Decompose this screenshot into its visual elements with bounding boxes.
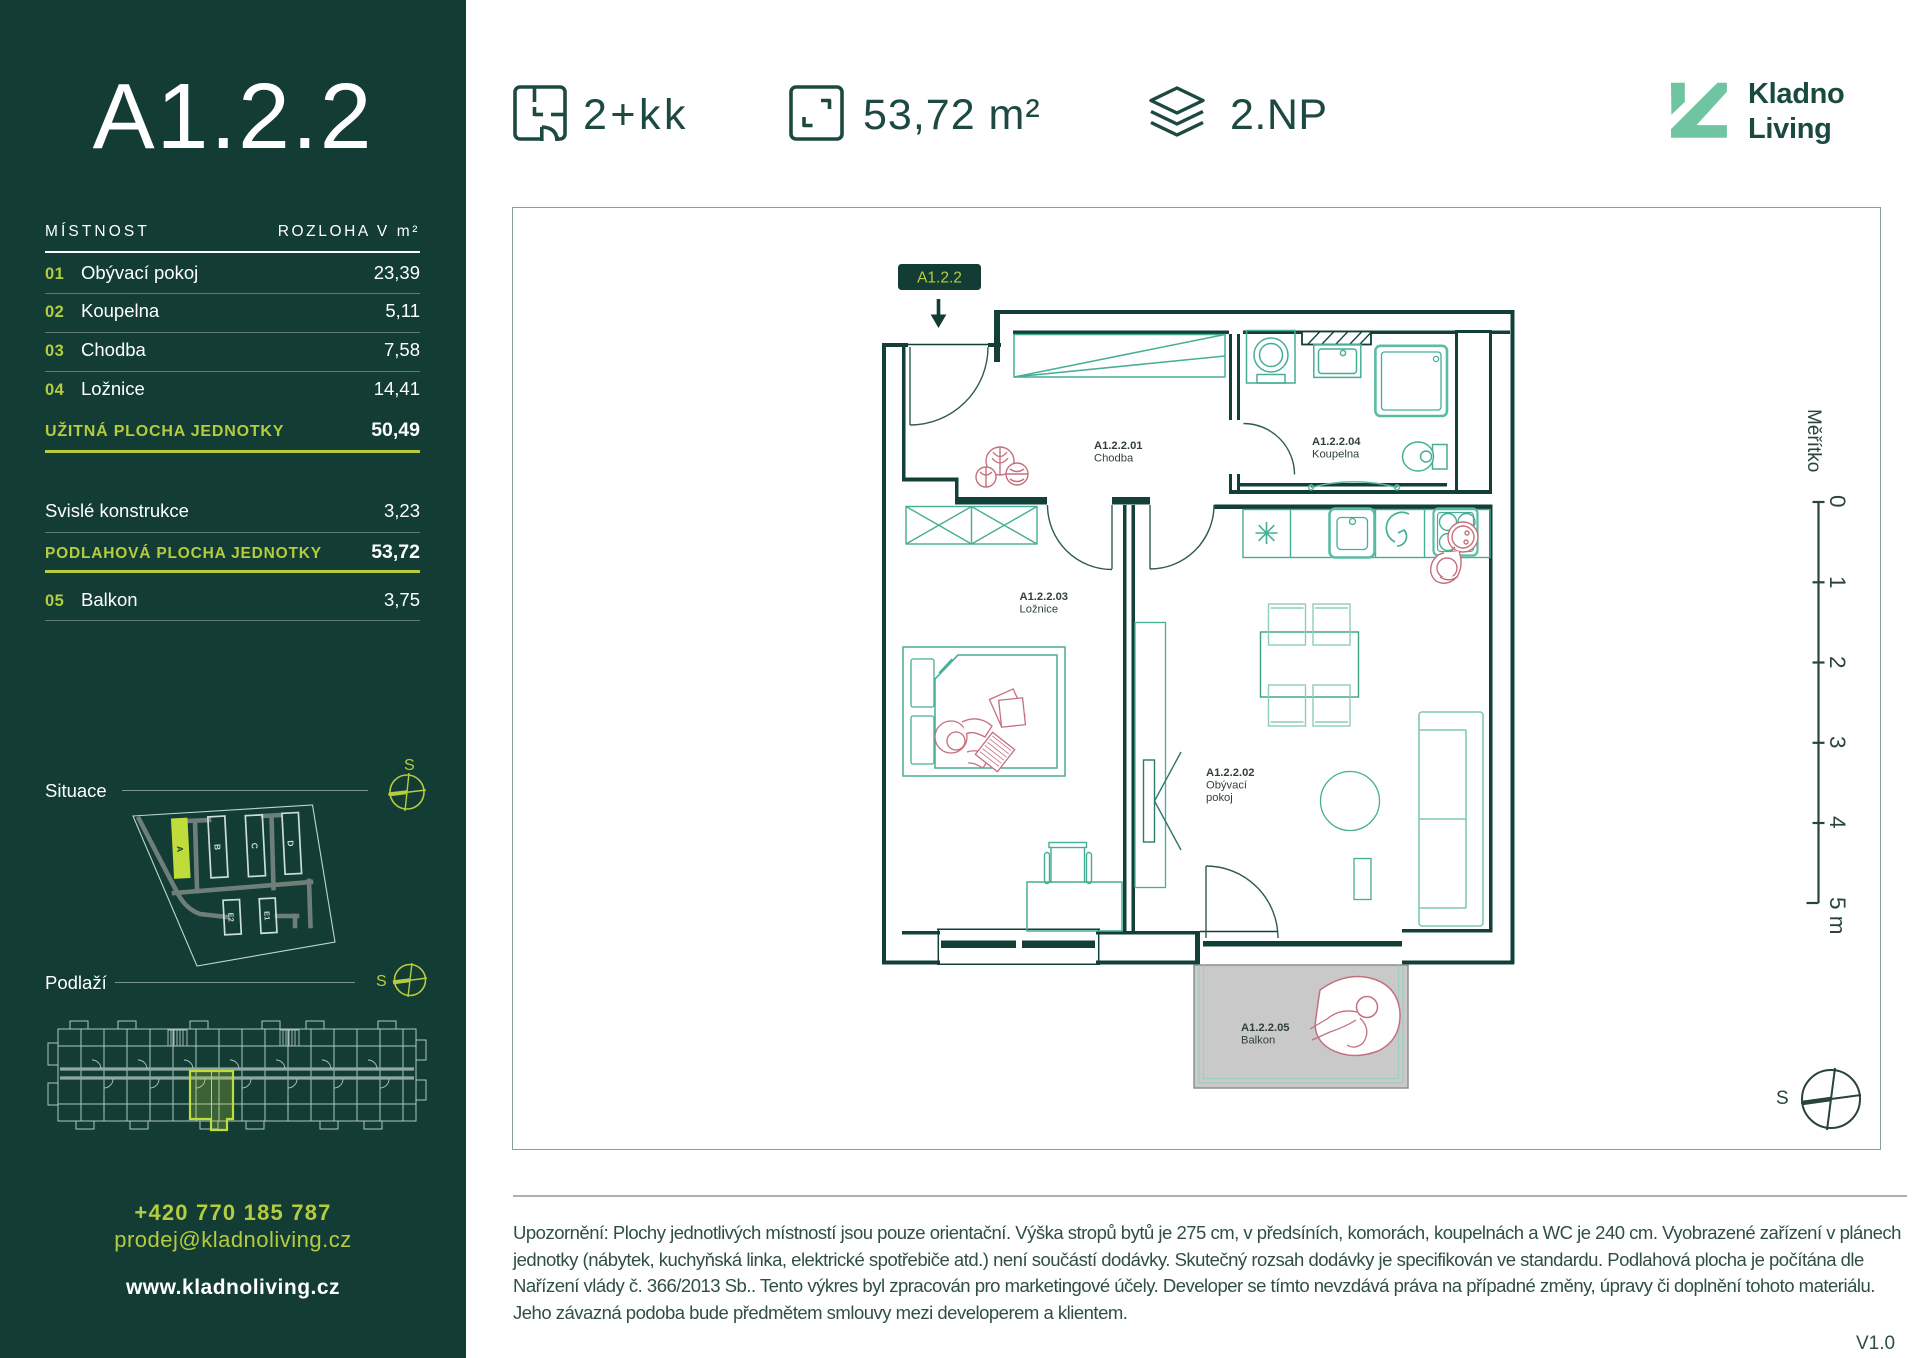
svg-text:Měřítko: Měřítko: [1803, 409, 1824, 472]
svg-text:A1.2.2.03: A1.2.2.03: [1020, 591, 1069, 603]
svg-text:Chodba: Chodba: [1094, 453, 1134, 465]
svg-text:B: B: [212, 844, 222, 851]
svg-text:0: 0: [1825, 495, 1850, 508]
svg-text:Koupelna: Koupelna: [1312, 449, 1360, 461]
svg-text:A1.2.2.02: A1.2.2.02: [1206, 767, 1255, 779]
svg-text:E1: E1: [262, 911, 271, 921]
svg-text:4: 4: [1825, 816, 1850, 829]
svg-text:2: 2: [1825, 656, 1850, 669]
svg-text:A1.2.2: A1.2.2: [917, 270, 962, 287]
svg-text:E2: E2: [226, 912, 235, 922]
svg-text:A1.2.2.04: A1.2.2.04: [1312, 436, 1361, 448]
svg-text:A1.2.2.05: A1.2.2.05: [1241, 1022, 1290, 1034]
svg-text:3: 3: [1825, 736, 1850, 749]
svg-text:A: A: [175, 846, 185, 853]
svg-text:pokoj: pokoj: [1206, 792, 1233, 804]
svg-text:D: D: [285, 840, 295, 847]
svg-text:Balkon: Balkon: [1241, 1035, 1275, 1047]
svg-text:1: 1: [1825, 576, 1850, 589]
svg-text:S: S: [404, 757, 415, 774]
svg-text:C: C: [250, 842, 260, 849]
svg-text:S: S: [376, 973, 387, 990]
svg-text:Ložnice: Ložnice: [1020, 604, 1059, 616]
svg-text:A1.2.2.01: A1.2.2.01: [1094, 440, 1143, 452]
svg-text:Obývací: Obývací: [1206, 780, 1248, 792]
svg-text:S: S: [1776, 1088, 1789, 1109]
svg-text:5 m: 5 m: [1825, 897, 1850, 935]
